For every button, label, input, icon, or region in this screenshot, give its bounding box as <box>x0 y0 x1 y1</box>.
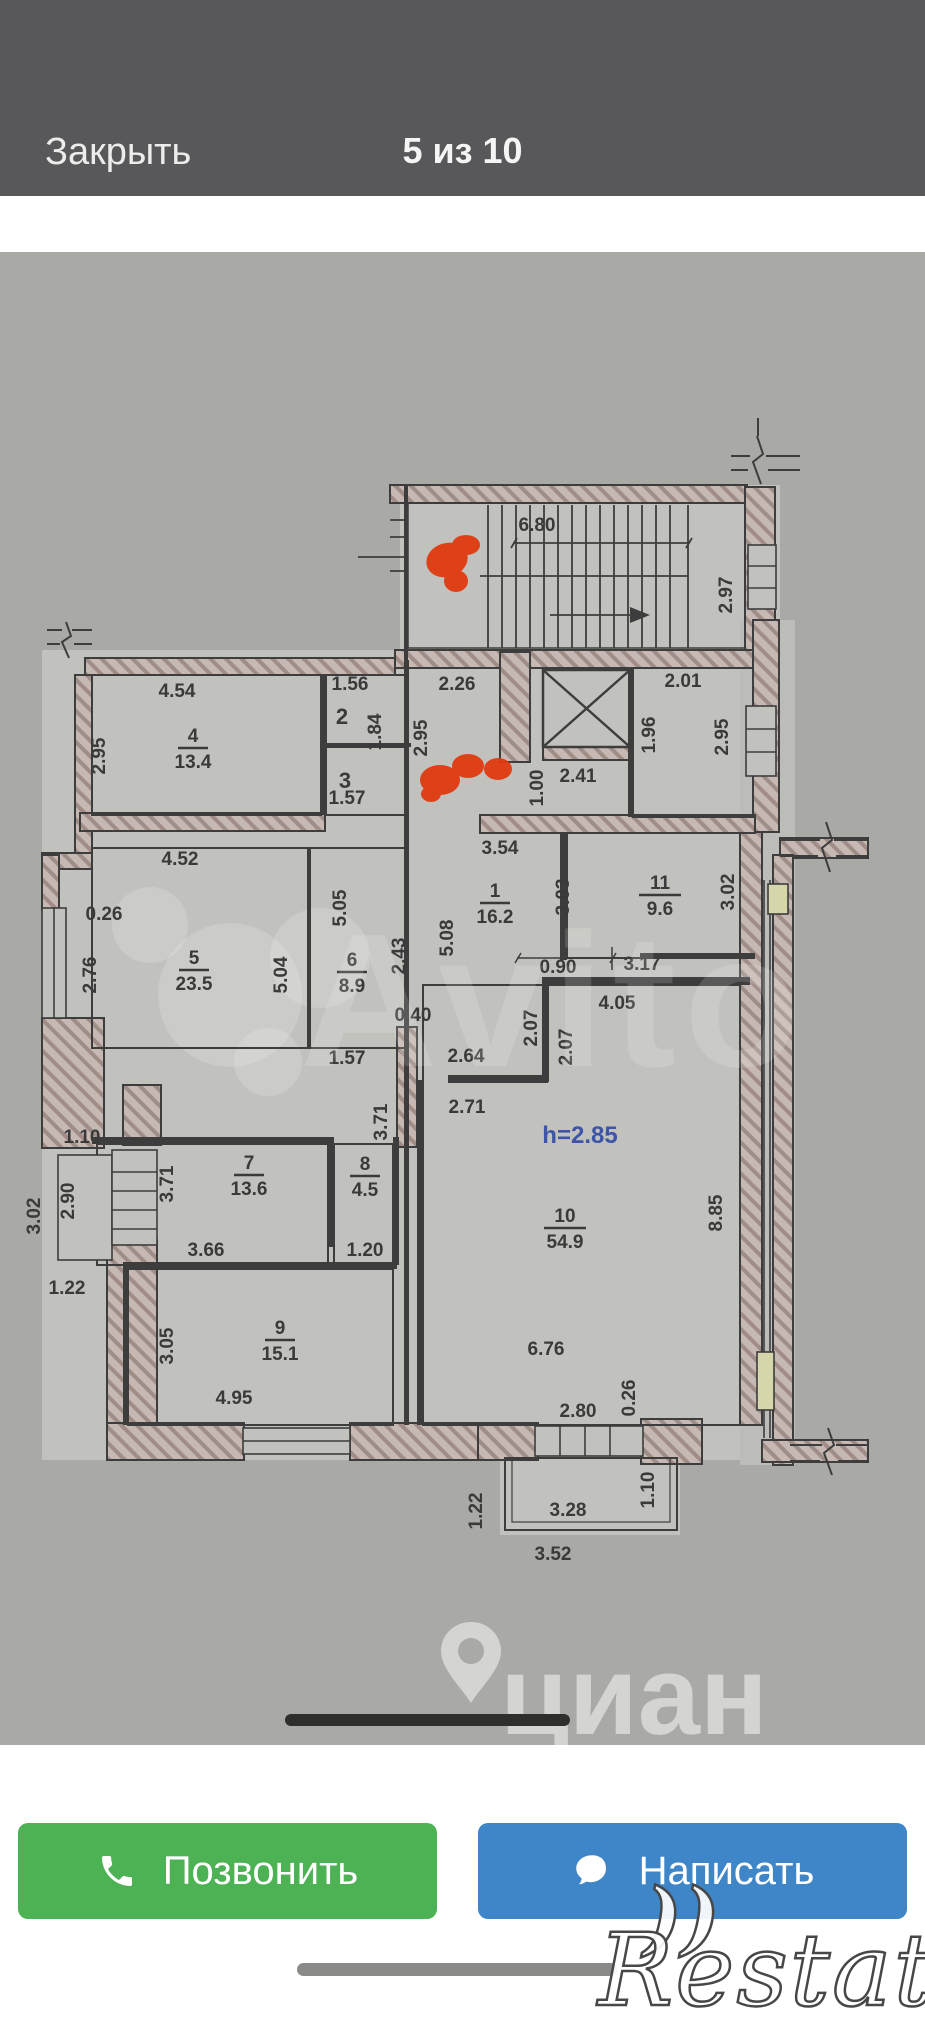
photo-counter: 5 из 10 <box>0 130 925 172</box>
dimension-label: 2.41 <box>560 766 597 787</box>
dimension-label: 3.54 <box>482 838 519 859</box>
dimension-label: 2.26 <box>439 674 476 695</box>
dimension-label: 2.76 <box>80 957 101 994</box>
room-number: 5 <box>189 948 200 969</box>
room-area: 13.4 <box>175 752 212 773</box>
restate-word: Restate <box>598 1912 925 2029</box>
dimension-label: 3.66 <box>188 1240 225 1261</box>
dimension-label: 2.80 <box>560 1401 597 1422</box>
dimension-label: 1.84 <box>365 713 386 750</box>
room-area: 15.1 <box>262 1344 299 1365</box>
dimension-label: 1.10 <box>64 1127 101 1148</box>
dimension-label: 3.05 <box>157 1327 178 1364</box>
dimension-label: 2.97 <box>716 577 737 614</box>
room-number: 7 <box>244 1153 255 1174</box>
room-area: 23.5 <box>176 974 213 995</box>
dimension-label: 8.85 <box>706 1194 727 1231</box>
dimension-label: 2.64 <box>448 1046 485 1067</box>
dimension-label: 1.57 <box>329 1048 366 1069</box>
room-area: 8.9 <box>339 976 365 997</box>
phone-icon <box>97 1851 137 1891</box>
dimension-label: 1.10 <box>638 1472 659 1509</box>
home-indicator[interactable] <box>297 1963 617 1976</box>
write-button[interactable]: Написать <box>478 1823 907 1919</box>
dimension-label: 5.05 <box>330 889 351 926</box>
dimension-label: 0.90 <box>540 957 577 978</box>
dimension-label: 2.07 <box>556 1029 577 1066</box>
dimension-label: 3.02 <box>718 874 739 911</box>
room-number: 4 <box>188 726 199 747</box>
room-area: 9.6 <box>647 899 673 920</box>
dimension-label: 3.17 <box>624 954 661 975</box>
room-area: 54.9 <box>547 1232 584 1253</box>
dimension-label: 5.08 <box>437 920 458 957</box>
dimension-label: 4.52 <box>162 849 199 870</box>
dimension-label: 3.52 <box>535 1544 572 1565</box>
room-area: 13.6 <box>231 1179 268 1200</box>
room-area: 4.5 <box>352 1180 379 1201</box>
dimension-label: 1.96 <box>639 717 660 754</box>
call-button[interactable]: Позвонить <box>18 1823 437 1919</box>
dimension-label: 3.28 <box>550 1500 587 1521</box>
call-button-label: Позвонить <box>163 1849 359 1894</box>
dimension-label: 2.07 <box>521 1010 542 1047</box>
photo-marker-line <box>285 1714 570 1726</box>
dimension-label: 4.05 <box>599 993 636 1014</box>
floorplan-drawing: 6.802.972.261.562.014.5421.842.952.951.9… <box>0 252 925 1745</box>
chat-icon <box>571 1850 613 1892</box>
dimension-label: 3.71 <box>371 1103 392 1140</box>
dimension-label: 3.03 <box>553 879 574 916</box>
dimension-label: 2 <box>336 704 348 729</box>
dimension-label: 2.43 <box>389 938 410 975</box>
dimension-label: 1.20 <box>347 1240 384 1261</box>
dimension-label: 2.01 <box>665 671 702 692</box>
dimension-label: h=2.85 <box>542 1122 617 1149</box>
room-number: 1 <box>490 881 501 902</box>
dimension-label: 0.26 <box>619 1380 640 1417</box>
dimension-label: 3.02 <box>24 1198 45 1235</box>
dimension-label: 1.57 <box>329 788 366 809</box>
room-number: 8 <box>360 1154 371 1175</box>
room-number: 9 <box>275 1318 286 1339</box>
gallery-header: Закрыть 5 из 10 <box>0 0 925 196</box>
dimension-label: 2.95 <box>89 737 110 774</box>
dimension-label: 2.90 <box>58 1183 79 1220</box>
write-button-label: Написать <box>639 1849 815 1894</box>
dimension-label: 0.40 <box>395 1005 432 1026</box>
dimension-label: 2.95 <box>712 718 733 755</box>
dimension-label: 0.26 <box>86 904 123 925</box>
floorplan-photo[interactable]: 6.802.972.261.562.014.5421.842.952.951.9… <box>0 252 925 1745</box>
room-number: 6 <box>347 950 358 971</box>
dimension-label: 2.95 <box>411 719 432 756</box>
dimension-label: 6.80 <box>519 515 556 536</box>
dimension-label: 4.54 <box>159 681 196 702</box>
room-number: 10 <box>554 1206 575 1227</box>
dimension-label: 1.22 <box>466 1493 487 1530</box>
room-area: 16.2 <box>477 907 514 928</box>
header-gap <box>0 196 925 254</box>
dimension-label: 5.04 <box>271 956 292 993</box>
dimension-label: 3.71 <box>157 1165 178 1202</box>
dimension-label: 1.22 <box>49 1278 86 1299</box>
dimension-label: 1.00 <box>527 770 548 807</box>
dimension-label: 2.71 <box>449 1097 486 1118</box>
dimension-label: 1.56 <box>332 674 369 695</box>
room-number: 11 <box>650 873 671 894</box>
dimension-label: 6.76 <box>528 1339 565 1360</box>
dimension-label: 4.95 <box>216 1388 253 1409</box>
